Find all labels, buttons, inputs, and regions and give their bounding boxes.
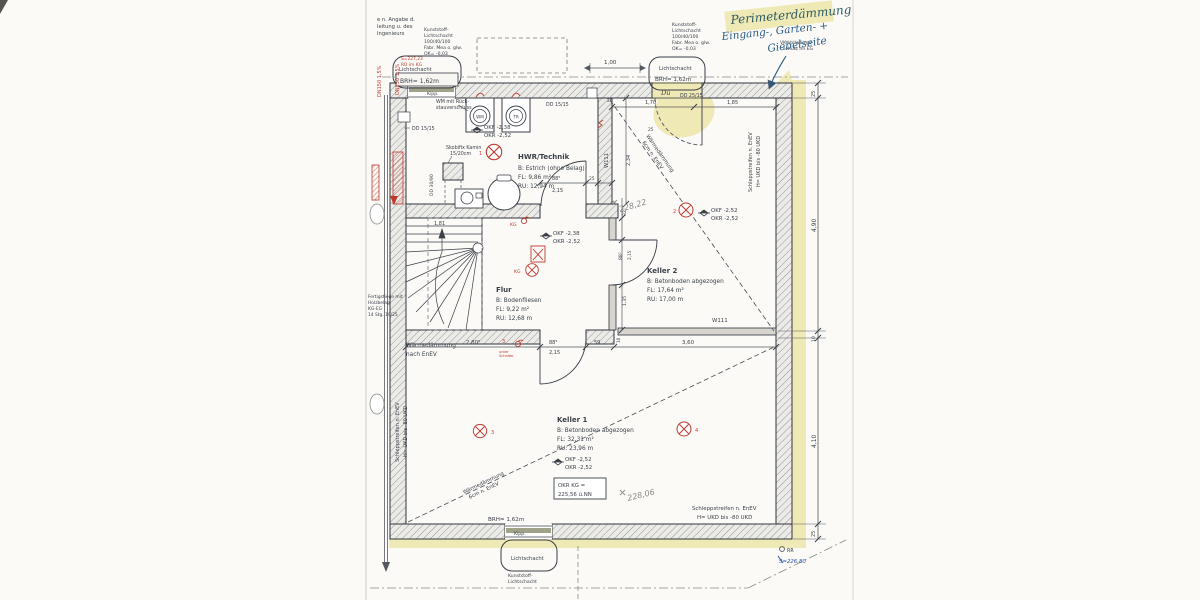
boiler-tank [488, 178, 520, 210]
room-k1-per: RU: 23,96 m [557, 446, 594, 452]
dim-215-door1: 2,15 [552, 188, 563, 194]
dim-10-w111: 10 [616, 337, 621, 343]
room-k2-area: FL: 17,64 m² [647, 287, 684, 294]
red-note-1: S=227,23 [401, 56, 423, 62]
chimney-block [443, 163, 463, 180]
room-hwr-per: RU: 12,94 m [518, 184, 555, 190]
ceiling-outlet-3 [473, 424, 486, 437]
dim-234: 2,34 [626, 155, 632, 166]
ls-spec-r5: OK= -0,03 [672, 46, 696, 52]
ls-spec-l4: Fabr. Mea o. glw. [424, 45, 462, 51]
dim-215-k2: 2,15 [627, 250, 632, 260]
ss-right-2: H= UKD bis -80 UKD [756, 136, 762, 187]
dd1515-top: DD 15/15 [546, 102, 569, 108]
dim-59: 59 [594, 340, 600, 346]
ls-b-label: Lichtschacht [511, 556, 544, 562]
note-cut-2: leitung u. des [377, 24, 413, 30]
room-hwr-name: HWR/Technik [518, 153, 570, 161]
ls-spec-r4: Fabr. Mea o. glw. [672, 40, 710, 46]
ls-tl-brh: BRH= 1,62m [400, 78, 439, 85]
wall-sleeve-2 [370, 394, 384, 414]
room-k2-per: RU: 17,00 m [647, 297, 684, 303]
room-k1-floor: B: Betonboden abgezogen [557, 428, 634, 434]
highlight-right-wall [791, 80, 806, 548]
wm-label: WM [476, 115, 484, 120]
note-cut-1: e n. Angabe d. [377, 17, 415, 23]
room-k2-name: Keller 2 [647, 267, 677, 275]
ls-tl-kipp: Kipp. [427, 91, 439, 97]
el-num-1: 1 [479, 151, 482, 157]
ls-b-spec1: Kunststoff- [508, 573, 533, 579]
dim-2805: 2,80⁵ [466, 339, 480, 346]
stair-note-2: Holzbelag [368, 300, 390, 306]
room-flur-name: Flur [496, 286, 512, 294]
ceiling-outlet-2 [679, 203, 693, 217]
ls-spec-l1: Kunststoff- [424, 27, 449, 33]
red-riser-2 [372, 165, 379, 200]
lvl-flur-okf: OKF -2,38 [553, 231, 580, 237]
ceiling-outlet-4 [677, 422, 691, 436]
dim-181: 1,81 [434, 221, 445, 227]
socket-kg-2 [526, 264, 539, 277]
wall-box-left [398, 112, 410, 122]
dim-185: 1,85 [727, 100, 738, 106]
lvl-k1-okf: OKF -2,52 [565, 457, 592, 463]
dim-410: 4,10 [811, 434, 818, 448]
dd1515-left: DD 15/15 [412, 126, 435, 132]
dim-885-k2: 88⁵ [618, 252, 624, 260]
handwriting-due: Dü [660, 89, 670, 97]
room-flur-per: RU: 12,68 m [496, 316, 533, 322]
stair-note-4: 14 Stg. 19/25 [368, 312, 398, 318]
dd3090-label: DD 30/90 [429, 174, 435, 196]
lvl-hwr-okr: OKR -2,52 [484, 133, 511, 139]
okr-kg-line2: 225,56 ü.NN [558, 492, 592, 498]
ls-spec-l5: OK= -0,03 [424, 51, 448, 57]
wall-sleeve-1 [370, 204, 384, 224]
ls-b-brh: BRH= 1,62m [488, 517, 524, 523]
dim-25-right-top: 25 [811, 91, 817, 97]
ls-spec-r3: 100/40/100 [672, 34, 699, 40]
room-hwr-area: FL: 9,86 m² [518, 174, 551, 181]
dim-25-door1: 25 [589, 176, 595, 182]
room-flur-floor: B: Bodenfliesen [496, 298, 542, 304]
dim-170: 1,70 [645, 100, 656, 106]
dim-215-door2: 2,15 [549, 350, 560, 356]
dim-25-a: 25 [607, 98, 613, 104]
w111-vertical: W111 [604, 153, 610, 168]
ss-bottom-1: Schleppstreifen n. EnEV [692, 506, 757, 512]
lvl-flur-okr: OKR -2,52 [553, 239, 580, 245]
dn150-label-1: DN150 1,5% [377, 65, 383, 97]
el-kg-1: KG [510, 222, 517, 228]
red-note-2: RD im KG [401, 62, 423, 68]
ls-tr-label: Lichtschacht [659, 66, 692, 72]
dim-885-door2: 88⁵ [549, 340, 557, 346]
dim-885-door1: 88⁵ [552, 176, 560, 182]
pen-level-blue: S=226,80 [779, 559, 806, 565]
lvl-hwr-okf: OKF -2,38 [484, 125, 511, 131]
stair-note-1: Fertigstiege mit [368, 294, 403, 300]
room-k1-name: Keller 1 [557, 416, 587, 424]
ls-spec-r2: Lichtschacht [672, 28, 701, 34]
floor-plan-drawing: e n. Angabe d. leitung u. des Ingenieurs… [0, 0, 1200, 600]
tr-label: TR [512, 115, 519, 120]
dim-360: 3,60 [682, 340, 695, 346]
stair-newel [473, 243, 483, 253]
room-k2-floor: B: Betonboden abgezogen [647, 279, 724, 285]
wd-left-2: nach EnEV [406, 352, 437, 358]
ls-b-spec2: Lichtschacht [508, 579, 537, 585]
lvl-k1-okr: OKR -2,52 [565, 465, 592, 471]
lvl-k2-okr: OKR -2,52 [711, 216, 738, 222]
ls-spec-l2: Lichtschacht [424, 33, 453, 39]
stair-note-3: KG-EG [368, 306, 383, 312]
boiler-cap [497, 175, 511, 181]
scanned-floor-plan-page: e n. Angabe d. leitung u. des Ingenieurs… [0, 0, 1200, 600]
okr-kg-line1: OKR KG = [558, 483, 585, 489]
ss-right-1: Schleppstreifen n. EnEV [748, 132, 754, 192]
wd-left-1: Wärmedämmung [406, 343, 456, 349]
ls-spec-r1: Kunststoff- [672, 22, 697, 28]
wm-note-1: WM mit Rück- [436, 99, 469, 105]
room-k1-area: FL: 32,31 m² [557, 436, 594, 443]
wm-note-2: stauverschluss [436, 105, 472, 111]
el-num-3: 3 [491, 430, 494, 436]
lvl-k2-okf: OKF -2,52 [711, 208, 738, 214]
dim-25-right-bottom: 25 [811, 531, 817, 537]
kamin-note-2: 15/20cm [450, 151, 471, 157]
w111-horizontal: W111 [712, 318, 728, 324]
room-flur-area: FL: 9,22 m² [496, 306, 529, 313]
dim-135: 1,35 [622, 296, 628, 306]
el-num-3b: 3 [502, 339, 505, 345]
ls-spec-l3: 100/40/100 [424, 39, 451, 45]
ss-left-2: H= UKD bis -80 UKD [403, 406, 409, 457]
dim-490: 4,90 [811, 218, 818, 232]
dim-100: 1,00 [604, 60, 617, 66]
el-kg-2: KG [514, 269, 521, 275]
dim-10-right: 10 [811, 336, 817, 342]
dim-25-b: 25 [648, 127, 654, 133]
room-hwr-floor: B: Estrich (ohne Belag) [518, 166, 585, 172]
window-bottom [505, 524, 552, 539]
ls-tr-brh: BRH= 1,62m [655, 77, 691, 83]
ss-left-1: Schleppstreifen n. EnEV [395, 402, 401, 462]
el-num-2: 2 [673, 209, 676, 215]
rr-label: RR [787, 548, 794, 554]
el-schalter: Schalter [499, 354, 514, 358]
dd2515-label: DD 25/15 [680, 93, 703, 99]
wall-box-top [587, 88, 597, 98]
note-cut-3: Ingenieurs [377, 31, 405, 37]
ls-b-kipp: Kipp. [514, 531, 526, 537]
dn150-label-2: DN150 1,5% [395, 63, 401, 95]
el-num-4: 4 [695, 428, 698, 434]
kamin-note-1: Skobifix Kamin [446, 145, 481, 151]
ss-bottom-2: H= UKD bis -80 UKD [697, 515, 752, 521]
ceiling-outlet-1 [486, 144, 501, 159]
